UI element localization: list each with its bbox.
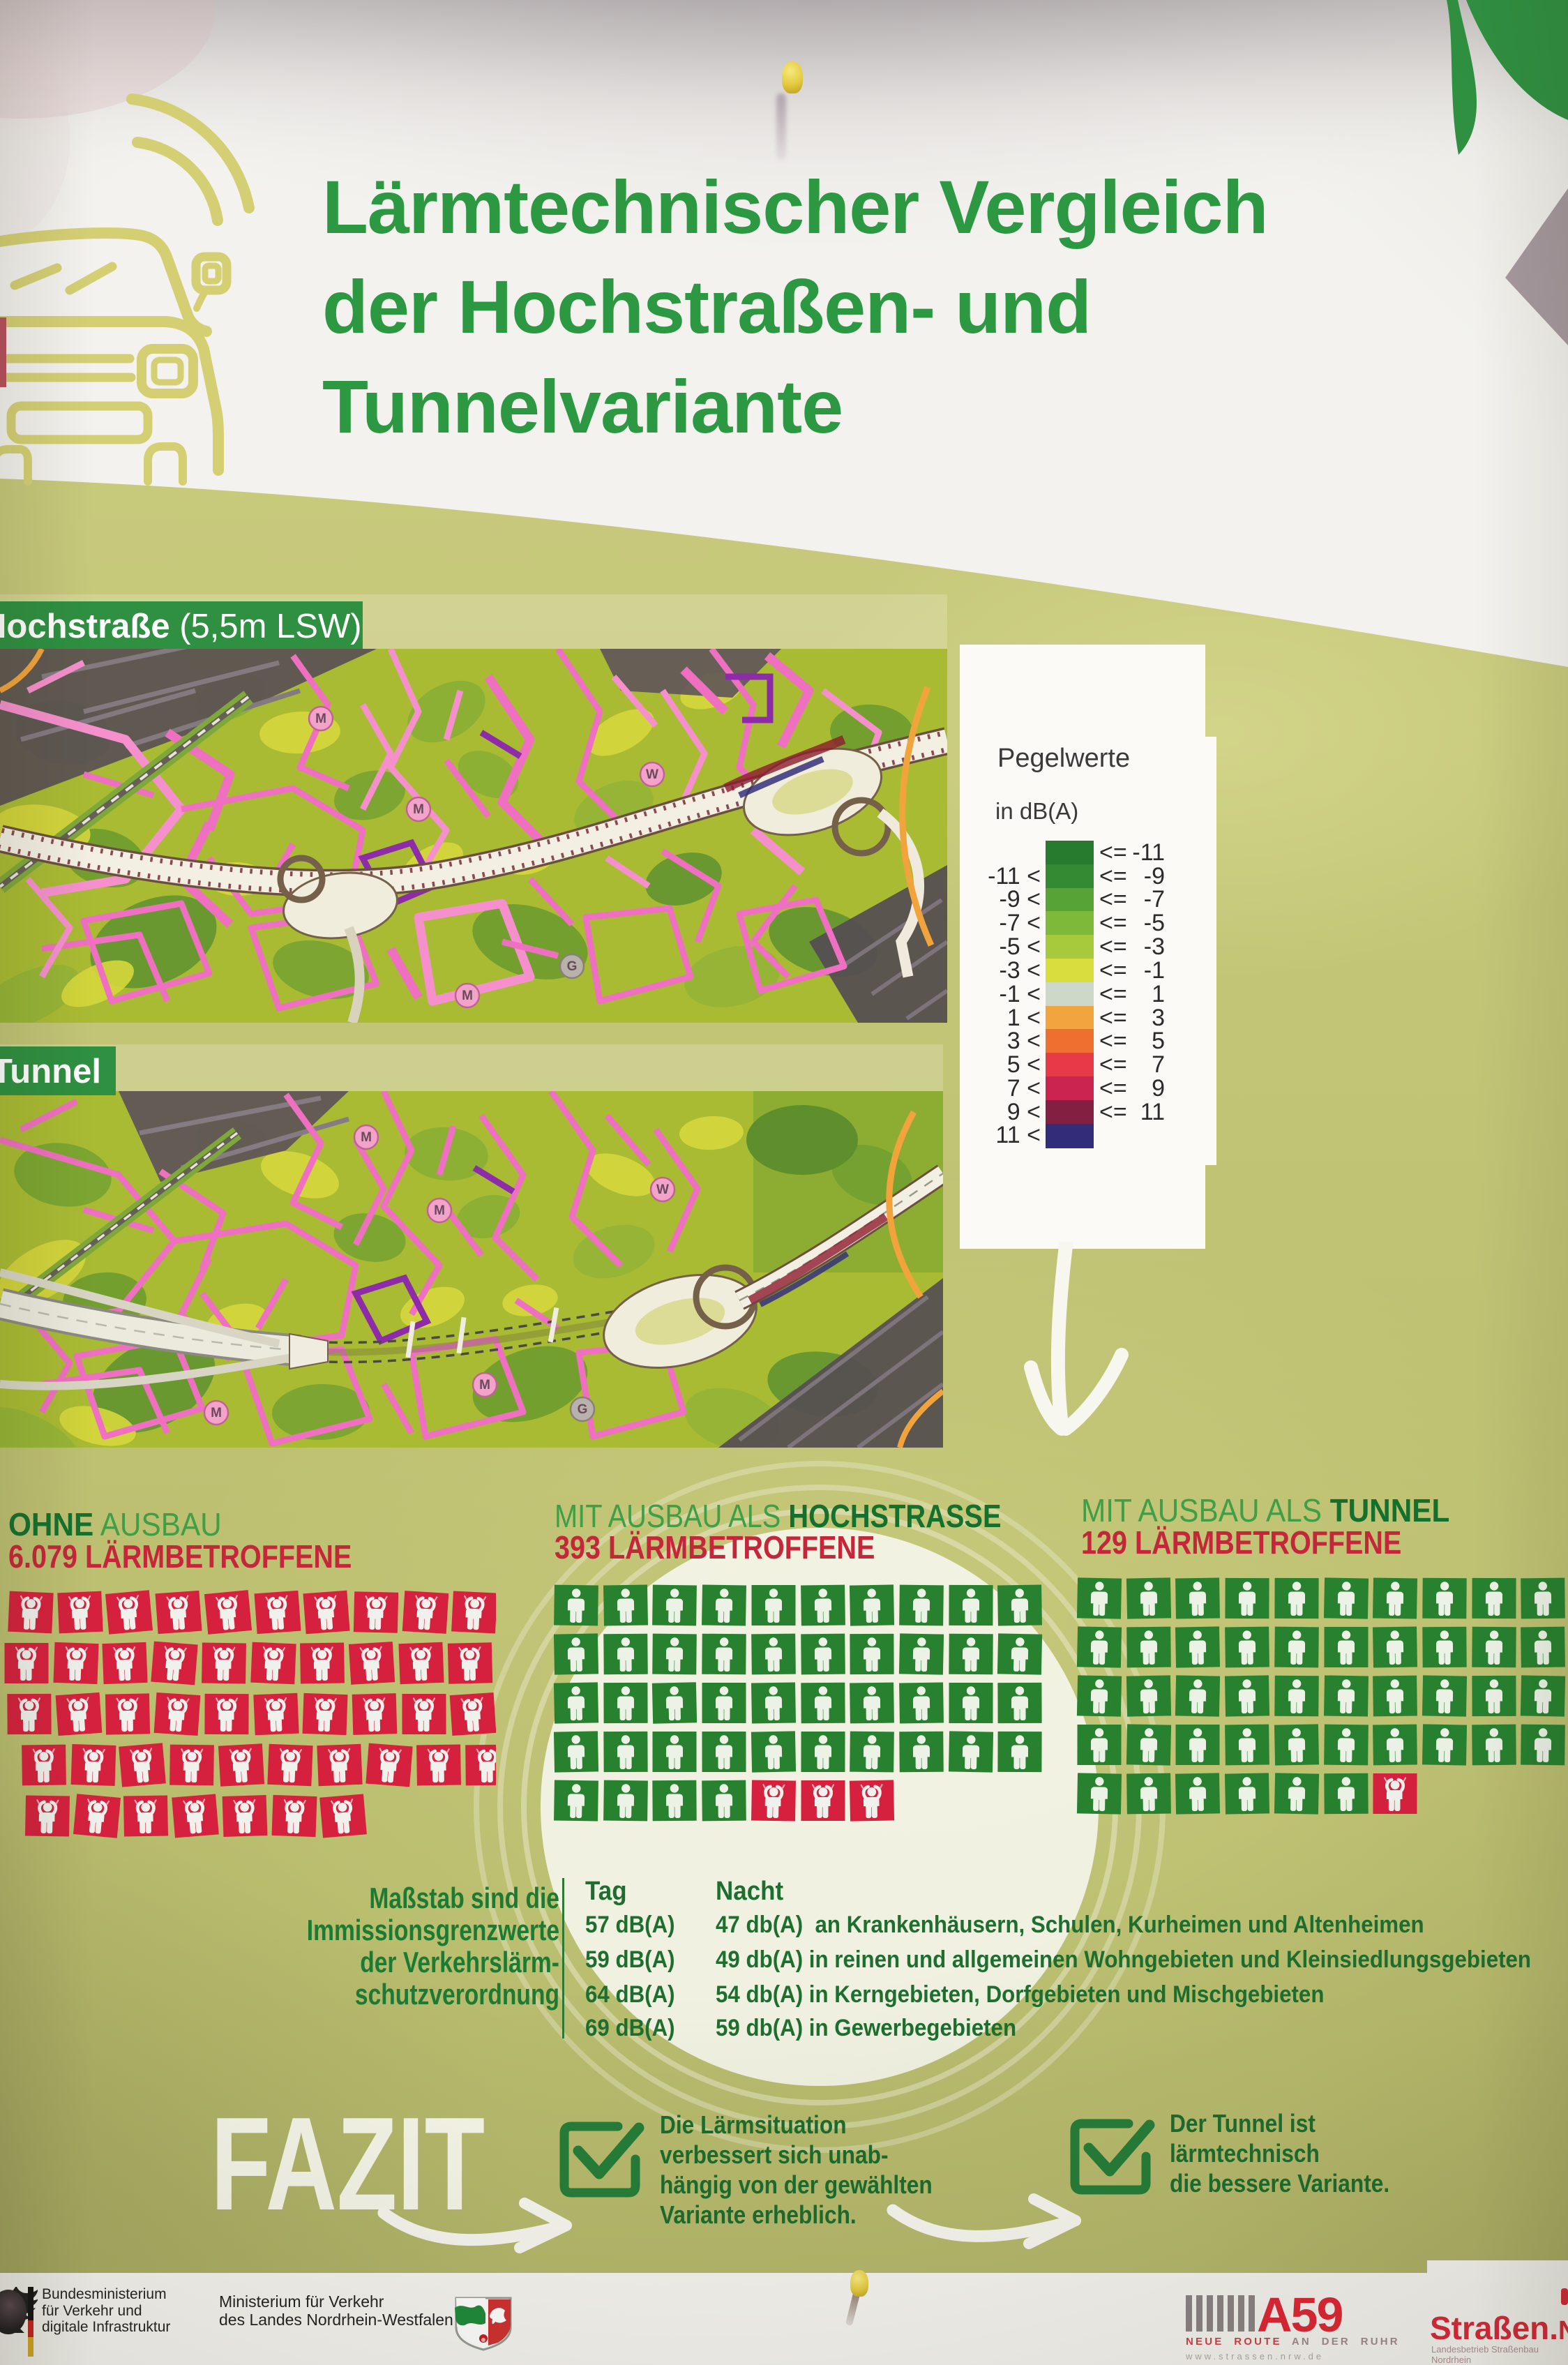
svg-text:A59: A59 — [1257, 2290, 1342, 2338]
svg-text:W: W — [656, 1182, 669, 1197]
svg-text:M: M — [315, 712, 326, 726]
svg-text:M: M — [211, 1406, 222, 1420]
svg-text:M: M — [434, 1203, 445, 1218]
svg-text:M: M — [462, 989, 473, 1003]
svg-text:M: M — [361, 1130, 372, 1145]
svg-text:M: M — [413, 802, 424, 817]
svg-text:G: G — [567, 959, 578, 974]
svg-text:W: W — [646, 767, 658, 782]
